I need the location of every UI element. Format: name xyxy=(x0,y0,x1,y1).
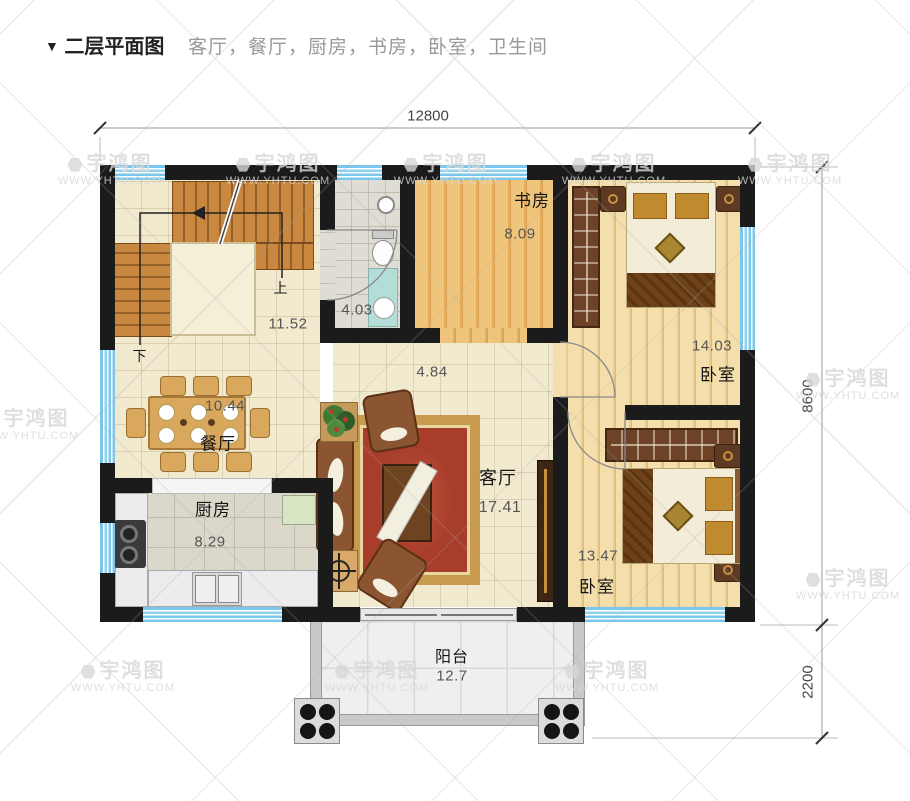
wall-segment xyxy=(740,350,755,622)
nightstand-knob-icon xyxy=(723,565,733,575)
wall-segment xyxy=(740,180,755,227)
watermark-text: 宇鸿图 xyxy=(766,153,832,175)
column-dot-icon xyxy=(300,723,316,739)
balcony-area-label: 12.7 xyxy=(436,668,467,685)
accent-pillow xyxy=(662,500,693,531)
flower-icon xyxy=(334,427,339,432)
nightstand xyxy=(600,186,626,212)
dining-chair xyxy=(250,408,270,438)
window xyxy=(585,607,725,622)
shower-head-icon xyxy=(373,297,395,319)
window xyxy=(440,165,527,180)
bedroom2-area-label: 13.47 xyxy=(578,548,618,565)
window xyxy=(337,165,382,180)
pillow xyxy=(675,193,709,219)
window xyxy=(115,165,165,180)
watermark-logo-icon xyxy=(80,665,95,679)
dimension-height-main-label: 8600 xyxy=(800,379,817,412)
dining-chair xyxy=(193,376,219,396)
bed-bedroom2 xyxy=(622,468,742,564)
wall-segment xyxy=(527,165,755,180)
wall-segment xyxy=(320,180,335,230)
wall-segment xyxy=(100,607,143,622)
pillow xyxy=(705,521,733,555)
coffee-table xyxy=(382,464,432,542)
dining-chair xyxy=(126,408,146,438)
armchair-cushion xyxy=(379,425,408,442)
plate xyxy=(158,427,175,444)
stairs-down-label: 下 xyxy=(133,346,148,366)
balcony-column xyxy=(294,698,340,744)
armchair-cushion xyxy=(370,575,401,601)
flower-icon xyxy=(329,409,334,414)
column-dot-icon xyxy=(563,723,579,739)
watermark-text: 宇鸿图 xyxy=(824,368,890,390)
sliding-door-panel xyxy=(441,614,513,616)
bedroom2-door-threshold xyxy=(568,405,625,420)
wardrobe-rail xyxy=(586,192,588,322)
bedroom1-area-label: 14.03 xyxy=(692,338,732,355)
stairs-up-label: 上 xyxy=(274,278,289,298)
column-dot-icon xyxy=(319,723,335,739)
burner-icon xyxy=(120,546,138,564)
plate xyxy=(158,404,175,421)
toilet-bowl xyxy=(372,240,394,266)
wall-segment xyxy=(100,463,115,523)
watermark-url: WWW.YHTU.COM xyxy=(71,682,175,694)
kitchen-passthrough-counter xyxy=(152,478,272,494)
dish xyxy=(180,419,187,426)
wall-segment xyxy=(100,180,115,350)
table-runner xyxy=(376,461,437,547)
stair-flight-stub xyxy=(255,243,314,270)
wall-segment xyxy=(400,180,415,328)
dish xyxy=(208,419,215,426)
floor-plan-page: ▼ 二层平面图 客厅，餐厅，厨房，书房，卧室，卫生间 xyxy=(0,0,910,801)
nightstand-knob-icon xyxy=(608,194,618,204)
study-area-label: 8.09 xyxy=(504,226,535,243)
kitchen-sink xyxy=(192,572,242,606)
study-name-label: 书房 xyxy=(514,187,550,212)
watermark: 宇鸿图WWW.YHTU.COM xyxy=(796,568,900,602)
dimension-tick-icon xyxy=(816,161,828,173)
page-title: 二层平面图 xyxy=(64,36,164,58)
plant-pot xyxy=(320,402,358,442)
bathroom-door-threshold xyxy=(320,230,335,300)
dining-chair xyxy=(160,452,186,472)
dimension-tick-icon xyxy=(816,732,828,744)
watermark-text: 宇鸿图 xyxy=(824,568,890,590)
bathroom-area-label: 4.03 xyxy=(341,302,372,319)
column-dot-icon xyxy=(544,723,560,739)
watermark-logo-icon xyxy=(67,158,82,172)
stair-flight-top xyxy=(172,181,314,243)
dining-chair xyxy=(226,376,252,396)
dimension-width-label: 12800 xyxy=(407,108,449,125)
watermark-text: 宇鸿图 xyxy=(99,660,165,682)
bathroom-sink xyxy=(377,196,395,214)
watermark-text: 宇鸿图 xyxy=(3,408,69,430)
watermark: 宇鸿图WWW.YHTU.COM xyxy=(0,408,79,442)
hallway-area-label: 4.84 xyxy=(416,364,447,381)
window xyxy=(143,607,282,622)
column-dot-icon xyxy=(544,704,560,720)
dimension-tick-icon xyxy=(816,619,828,631)
stair-flight-left xyxy=(113,243,172,337)
sliding-door-panel xyxy=(365,614,437,616)
bedroom1-name-label: 卧室 xyxy=(700,361,736,386)
fridge xyxy=(282,495,316,525)
tv-screen-line xyxy=(544,469,547,593)
bed-blanket xyxy=(627,273,715,307)
wall-segment xyxy=(282,607,360,622)
wall-segment xyxy=(517,607,585,622)
dining-chair xyxy=(193,452,219,472)
dimension-tick-icon xyxy=(749,122,761,134)
dimension-tick-icon xyxy=(94,122,106,134)
burner-icon xyxy=(120,525,138,543)
kitchen-area-label: 8.29 xyxy=(194,534,225,551)
wardrobe-bedroom1 xyxy=(572,186,600,328)
bedroom1-door-threshold xyxy=(553,343,568,397)
stairs-area-label: 11.52 xyxy=(269,316,308,333)
wall-segment xyxy=(115,478,152,493)
armchair-top xyxy=(361,388,420,454)
dimension-height-balcony-label: 2200 xyxy=(800,665,817,698)
bed-blanket xyxy=(623,469,653,563)
watermark-text: 宇鸿图 xyxy=(583,660,649,682)
watermark-url: WWW.YHTU.COM xyxy=(796,590,900,602)
nightstand-knob-icon xyxy=(723,451,733,461)
tv-cabinet xyxy=(537,460,554,602)
dining-chair xyxy=(226,452,252,472)
living-area-label: 17.41 xyxy=(479,499,522,517)
balcony-column xyxy=(538,698,584,744)
wall-segment xyxy=(320,328,440,343)
sliding-door xyxy=(360,608,517,621)
dining-name-label: 餐厅 xyxy=(200,430,236,455)
nightstand-knob-icon xyxy=(724,194,734,204)
sink-basin xyxy=(218,575,239,603)
watermark-url: WWW.YHTU.COM xyxy=(0,430,79,442)
dining-area-label: 10.44 xyxy=(205,398,245,415)
wall-segment xyxy=(725,607,755,622)
toilet-tank xyxy=(372,230,394,239)
triangle-marker-icon: ▼ xyxy=(45,38,59,54)
window xyxy=(100,523,115,573)
watermark-logo-icon xyxy=(805,573,820,587)
wall-segment xyxy=(553,180,568,328)
nightstand xyxy=(716,186,742,212)
bed-bedroom1 xyxy=(626,182,716,308)
stair-landing xyxy=(170,242,256,336)
balcony-name-label: 阳台 xyxy=(435,643,469,667)
bedroom2-name-label: 卧室 xyxy=(579,573,615,598)
window xyxy=(100,350,115,463)
page-subtitle: 客厅，餐厅，厨房，书房，卧室，卫生间 xyxy=(188,37,548,58)
pillow xyxy=(705,477,733,511)
wall-segment xyxy=(553,397,568,610)
accent-pillow xyxy=(654,232,685,263)
wall-segment xyxy=(382,165,440,180)
dining-chair xyxy=(160,376,186,396)
living-name-label: 客厅 xyxy=(479,464,517,490)
wall-segment xyxy=(165,165,337,180)
nightstand xyxy=(714,444,742,468)
page-title-row: ▼ 二层平面图 客厅，餐厅，厨房，书房，卧室，卫生间 xyxy=(45,30,548,59)
flower-icon xyxy=(343,417,348,422)
watermark: 宇鸿图WWW.YHTU.COM xyxy=(71,660,175,694)
pillow xyxy=(633,193,667,219)
wall-segment xyxy=(527,328,568,343)
stove xyxy=(114,520,146,568)
column-dot-icon xyxy=(563,704,579,720)
column-dot-icon xyxy=(319,704,335,720)
kitchen-name-label: 厨房 xyxy=(195,496,231,521)
wall-segment xyxy=(100,165,115,180)
wall-segment xyxy=(318,478,333,607)
sink-basin xyxy=(195,575,216,603)
column-dot-icon xyxy=(300,704,316,720)
window xyxy=(740,227,755,350)
wall-segment xyxy=(625,405,740,420)
